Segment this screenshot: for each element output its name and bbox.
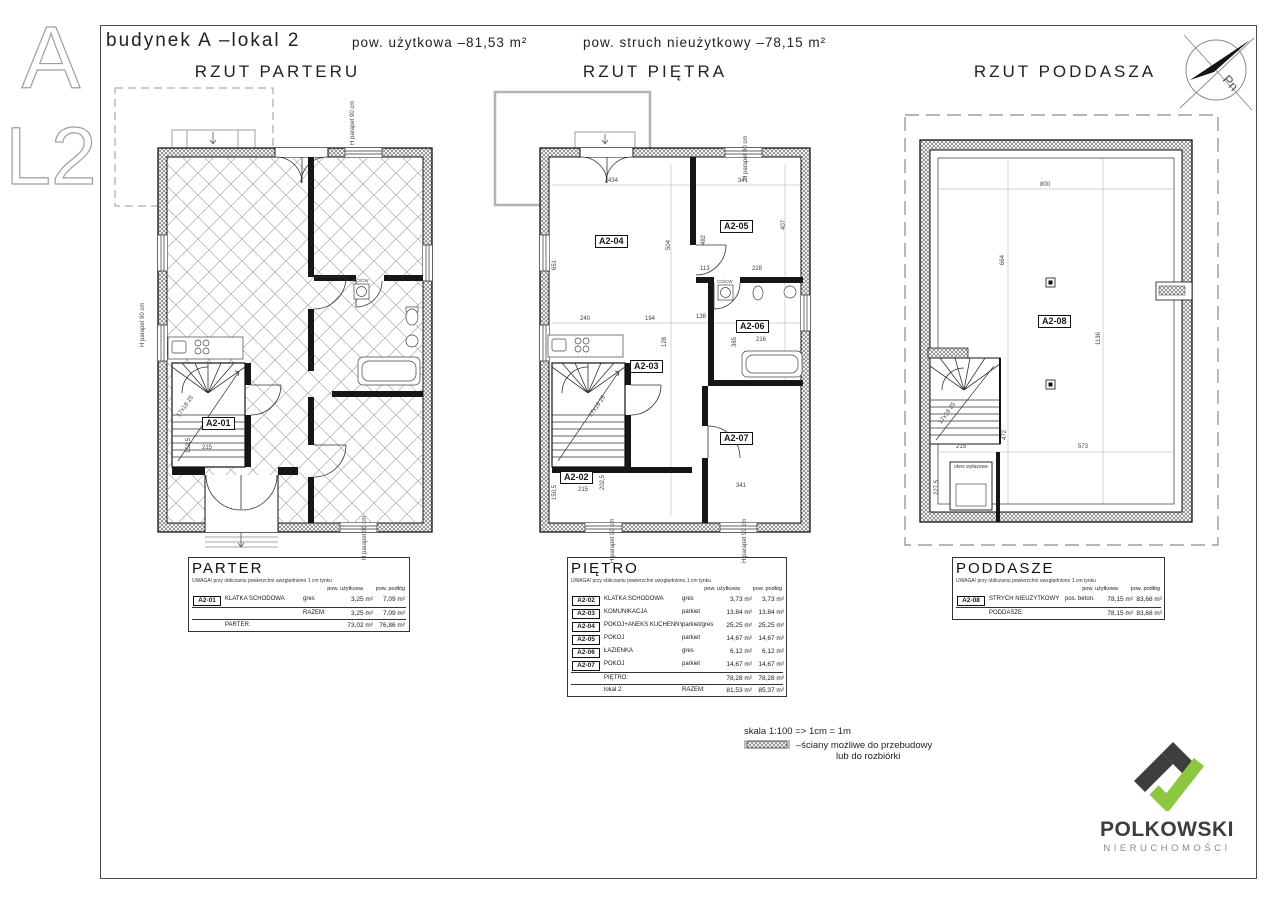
dim-label: 482 (701, 235, 707, 245)
room-label-a2-08: A2-08 (1038, 315, 1071, 328)
plan-pietro: A2-02 A2-03 A2-04 A2-05 A2-06 A2-07 434 … (490, 85, 820, 565)
canopy (575, 132, 635, 148)
col-header-floor: pow. podłóg (363, 586, 405, 592)
plan-parter: A2-01 215 152,5 17x18 25 H parapet 90 cm… (110, 85, 445, 565)
dim-label: 1136 (1096, 332, 1102, 345)
table-subtotal: PIĘTRO: 78,28 m² 78,28 m² (571, 672, 783, 683)
table-head: pow. użytkowa pow. podłóg (571, 586, 783, 593)
sheet-letter-l2: L2 (5, 111, 96, 196)
dim-label: 228 (752, 266, 762, 272)
canopy (172, 130, 255, 148)
dim-label: H parapet 90 cm (362, 516, 368, 560)
room-code: A2-01 (193, 596, 221, 606)
logo-subtitle: NIERUCHOMOŚCI (1098, 843, 1236, 854)
plan-title-parter: RZUT PARTERU (110, 62, 445, 82)
usable-area-label: pow. użytkowa –81,53 m² (352, 35, 527, 50)
scale-note: skala 1:100 => 1cm = 1m (744, 726, 932, 737)
total-label: PODDASZE: (989, 609, 1065, 618)
table-row: A2-01 KLATKA SCHODOWA gres 3,25 m² 7,09 … (192, 593, 406, 606)
dim-label: 128 (662, 337, 668, 347)
table-parter: PARTER UWAGA! przy obliczaniu powierzchn… (188, 557, 410, 632)
table-poddasze: PODDASZE UWAGA! przy obliczaniu powierzc… (952, 557, 1165, 620)
staircase (928, 348, 1000, 444)
wall-stub (996, 452, 1000, 522)
subtotal-label: PIĘTRO: (604, 674, 682, 683)
table-row: A2-06 ŁAZIENKA gres 6,12 m² 6,12 m² (571, 645, 783, 658)
col-header-floor: pow. podłóg (1118, 586, 1160, 592)
col-header-area: pow. użytkowa (1072, 586, 1118, 592)
razem-label: RAZEM: (682, 686, 722, 695)
table-row: A2-04 POKÓJ+ANEKS KUCHENNY parkiet/gres … (571, 619, 783, 632)
dim-label: 385 (732, 337, 738, 347)
room-label-a2-04: A2-04 (595, 235, 628, 248)
dim-label: 113 (700, 266, 710, 272)
table-head: pow. użytkowa pow. podłóg (956, 586, 1161, 593)
plan-poddasze: A2-08 okno wyłazowe 800 664 1136 573 215… (900, 100, 1230, 570)
room-area: 3,25 m² (343, 595, 373, 604)
sheet-code-letters: A L2 (4, 6, 99, 196)
dim-label: 504 (666, 240, 672, 250)
table-title: PARTER (192, 560, 406, 577)
razem-label: RAZEM: (303, 609, 343, 618)
dim-label: 202,5 (600, 475, 606, 490)
wall-notch (1156, 282, 1192, 300)
room-label-a2-02: A2-02 (560, 471, 593, 484)
dim-label: 215 (578, 487, 588, 493)
room-label-a2-06: A2-06 (736, 320, 769, 333)
table-title: PODDASZE (956, 560, 1161, 577)
roof-access-window-label: okno wyłazowe (952, 465, 990, 471)
floor-area (930, 150, 1182, 512)
room-floor: 7,09 m² (373, 595, 405, 604)
dim-label: 407 (781, 220, 787, 230)
dim-label: 434 (608, 178, 618, 184)
room-finish: gres (303, 595, 343, 604)
dim-label: 215 (956, 444, 966, 450)
table-title: PIĘTRO (571, 560, 783, 577)
total-label: lokal 2: (604, 686, 682, 695)
wall-note-line1: –ściany możliwe do przebudowy (796, 740, 932, 751)
dim-label: H parapet 90 cm (350, 101, 356, 145)
col-header-area: pow. użytkowa (694, 586, 740, 592)
table-total: PODDASZE: 78,15 m² 83,68 m² (956, 607, 1161, 619)
plan-pietro-drawing (490, 85, 820, 565)
table-subtotal: RAZEM: 3,25 m² 7,09 m² (192, 607, 406, 618)
room-label-a2-05: A2-05 (720, 220, 753, 233)
total-label: PARTER: (225, 621, 303, 630)
table-row: A2-05 POKÓJ parkiet 14,67 m² 14,67 m² (571, 632, 783, 645)
dim-label: 341 (736, 483, 746, 489)
dim-label: 472 (1002, 430, 1008, 440)
logo-name: POLKOWSKI (1098, 818, 1236, 842)
legend: skala 1:100 => 1cm = 1m –ściany możliwe … (744, 726, 932, 762)
wall-note-line2: lub do rozbiórki (836, 751, 932, 762)
dim-label: 216 (756, 337, 766, 343)
table-row: A2-08 STRYCH NIEUŻYTKOWY pos. beton. 78,… (956, 593, 1161, 606)
demolition-wall-symbol-icon (744, 739, 792, 751)
room-label-a2-07: A2-07 (720, 432, 753, 445)
plan-parter-drawing (110, 85, 445, 565)
dim-label: H parapet 90 cm (140, 303, 146, 347)
table-note: UWAGA! przy obliczaniu powierzchni uwzgl… (571, 578, 783, 584)
table-row: A2-03 KOMUNIKACJA parkiet 13,84 m² 13,84… (571, 606, 783, 619)
col-header-floor: pow. podłóg (740, 586, 782, 592)
table-head: pow. użytkowa pow. podłóg (192, 586, 406, 593)
dim-label: 664 (1000, 255, 1006, 265)
kitchen-fixtures (168, 337, 243, 359)
dim-label: H parapet 90 cm (610, 519, 616, 563)
room-label-a2-01: A2-01 (202, 417, 235, 430)
table-row: A2-07 POKÓJ parkiet 14,67 m² 14,67 m² (571, 658, 783, 671)
fixture-label: CO/CW (717, 279, 733, 284)
nonusable-area-label: pow. struch nieużytkowy –78,15 m² (583, 35, 826, 50)
table-row: A2-02 KLATKA SCHODOWA gres 3,73 m² 3,73 … (571, 593, 783, 606)
plan-title-poddasze: RZUT PODDASZA (900, 62, 1230, 82)
room-name: KLATKA SCHODOWA (225, 595, 303, 604)
dim-label: 150,5 (552, 485, 558, 500)
dim-label: 215 (202, 445, 212, 451)
table-note: UWAGA! przy obliczaniu powierzchni uwzgl… (956, 578, 1161, 584)
table-note: UWAGA! przy obliczaniu powierzchni uwzgl… (192, 578, 406, 584)
dim-label: 194 (645, 316, 655, 322)
dim-label: H parapet 90 cm (743, 136, 749, 180)
dim-label: 152,5 (186, 438, 192, 453)
dim-label: 651 (552, 260, 558, 270)
dim-label: 138 (696, 314, 706, 320)
dim-label: 227,5 (934, 480, 940, 495)
table-total: PARTER: 73,02 m² 76,86 m² (192, 619, 406, 631)
sheet-title: budynek A –lokal 2 (106, 30, 300, 52)
logo-house-check-icon (1126, 733, 1208, 811)
logo: POLKOWSKI NIERUCHOMOŚCI (1098, 733, 1236, 854)
dim-label: 573 (1078, 444, 1088, 450)
dim-label: 800 (1040, 182, 1050, 188)
table-total: lokal 2: RAZEM: 81,53 m² 85,37 m² (571, 684, 783, 696)
kitchen-fixtures (548, 335, 623, 357)
entrance-porch (205, 475, 278, 547)
dim-label: 240 (580, 316, 590, 322)
table-pietro: PIĘTRO UWAGA! przy obliczaniu powierzchn… (567, 557, 787, 697)
plan-poddasze-drawing (900, 100, 1230, 570)
room-label-a2-03: A2-03 (630, 360, 663, 373)
plan-title-pietro: RZUT PIĘTRA (490, 62, 820, 82)
col-header-area: pow. użytkowa (317, 586, 363, 592)
floorplan-sheet: A L2 budynek A –lokal 2 pow. użytkowa –8… (0, 0, 1280, 904)
sheet-letter-a: A (22, 8, 81, 107)
fixture-label: CO/CW (353, 278, 369, 283)
dim-label: H parapet 90 cm (742, 519, 748, 563)
